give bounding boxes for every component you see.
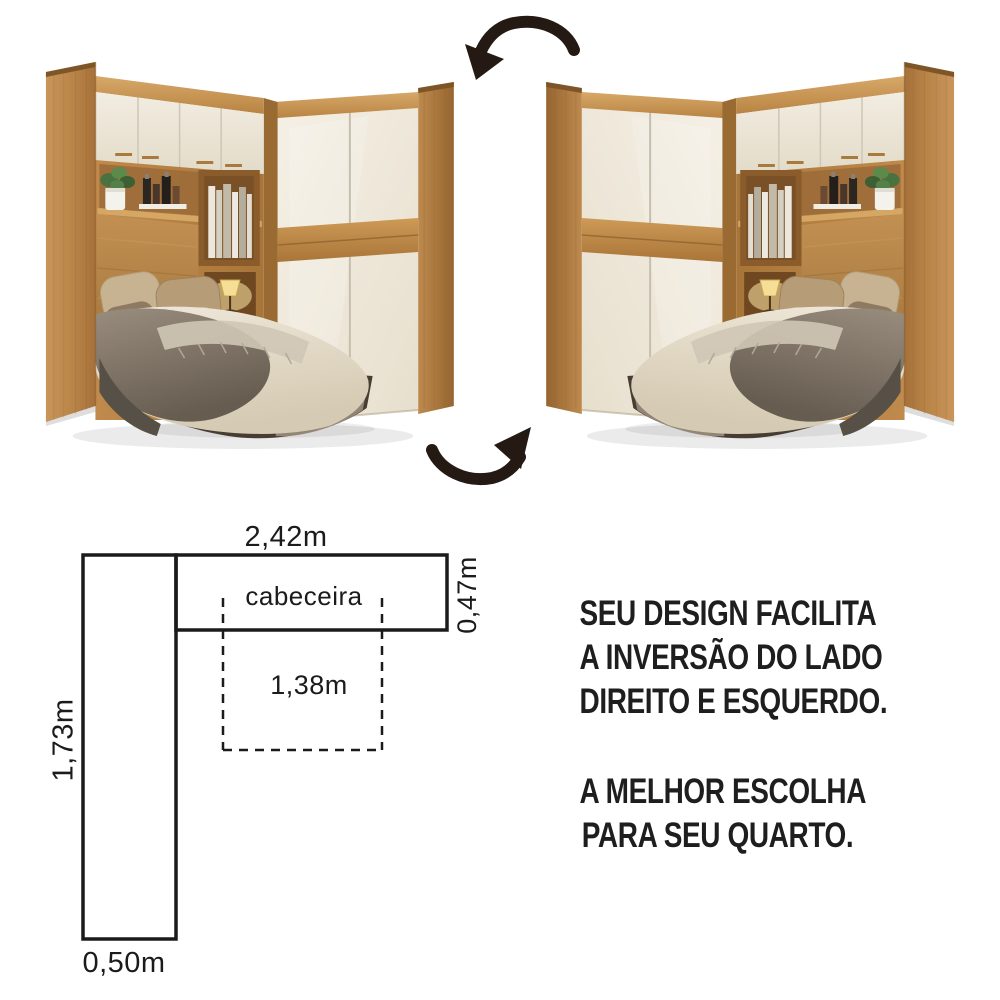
marketing-line: DIREITO E ESQUERDO. bbox=[580, 680, 856, 724]
product-hero bbox=[0, 0, 1000, 520]
marketing-line: A MELHOR ESCOLHA bbox=[580, 770, 856, 814]
marketing-paragraph-2: A MELHOR ESCOLHA PARA SEU QUARTO. bbox=[545, 770, 890, 858]
plan-side-panel-box bbox=[83, 555, 176, 939]
dimension-right-depth: 0,47m bbox=[452, 556, 482, 634]
dimension-top-width: 2,42m bbox=[244, 521, 327, 553]
marketing-paragraph-1: SEU DESIGN FACILITA A INVERSÃO DO LADO D… bbox=[545, 592, 890, 724]
product-photo-right-variant bbox=[546, 62, 954, 449]
marketing-line: PARA SEU QUARTO. bbox=[580, 814, 856, 858]
dimension-bed-width: 1,38m bbox=[270, 670, 348, 700]
dimension-left-height: 1,73m bbox=[48, 698, 80, 781]
flip-arrow-bottom-icon bbox=[432, 427, 531, 479]
headboard-label: cabeceira bbox=[245, 581, 362, 611]
dimension-bottom-width: 0,50m bbox=[82, 947, 165, 979]
flip-arrow-top-icon bbox=[465, 22, 574, 80]
marketing-line: SEU DESIGN FACILITA bbox=[580, 592, 856, 636]
marketing-text: SEU DESIGN FACILITA A INVERSÃO DO LADO D… bbox=[545, 592, 890, 858]
product-ad-canvas: 2,42m cabeceira 1,38m 0,47m 1,73m 0,50m … bbox=[0, 0, 1000, 1000]
marketing-line: A INVERSÃO DO LADO bbox=[580, 636, 856, 680]
floor-plan-diagram: 2,42m cabeceira 1,38m 0,47m 1,73m 0,50m bbox=[40, 520, 500, 980]
product-photo-left-variant bbox=[46, 62, 454, 449]
